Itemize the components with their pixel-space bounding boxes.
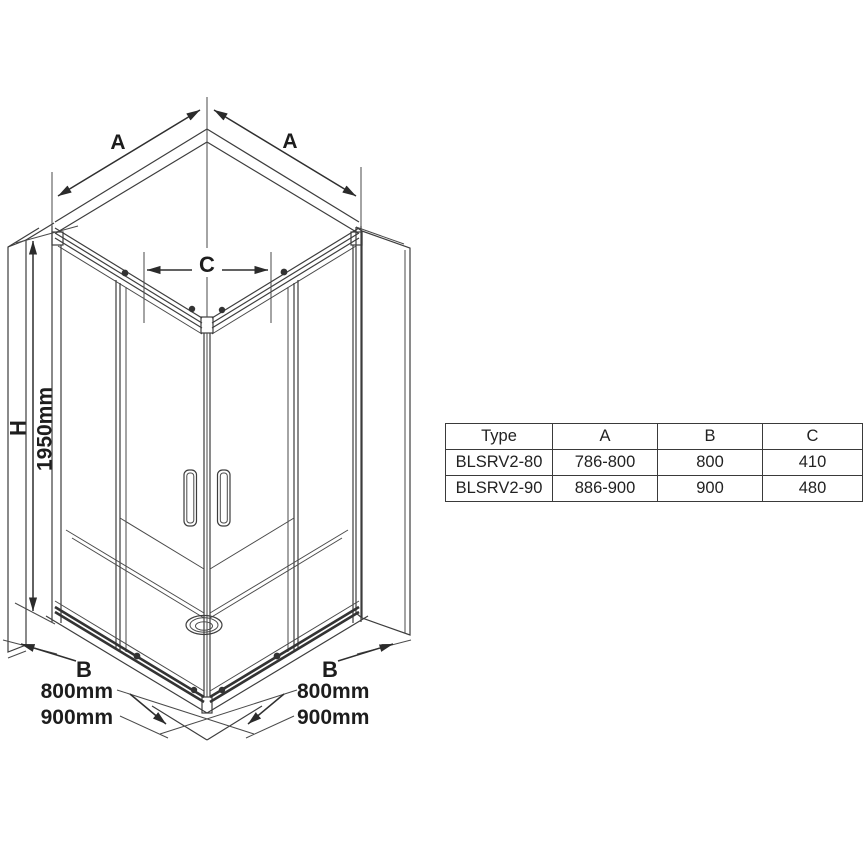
dim-b-left-label: B [76,657,92,682]
col-header-c: C [763,424,863,450]
table-row: BLSRV2-90 886-900 900 480 [446,476,863,502]
col-header-a: A [553,424,658,450]
col-header-b: B [658,424,763,450]
cell-b: 800 [658,450,763,476]
spec-table-header-row: Type A B C [446,424,863,450]
width-800-left-label: 800mm [41,680,113,703]
dim-b-right-label: B [322,657,338,682]
cell-c: 410 [763,450,863,476]
dim-a-left-label: A [110,131,125,154]
cell-a: 886-900 [553,476,658,502]
right-wall [356,227,410,635]
cell-a: 786-800 [553,450,658,476]
cell-type: BLSRV2-90 [446,476,553,502]
width-800-right-label: 800mm [297,680,369,703]
dim-c-label: C [199,252,215,277]
width-900-right-label: 900mm [297,706,369,729]
corner-post [201,317,213,713]
dim-a-right-label: A [282,130,297,153]
dim-h-value-label: 1950mm [34,387,57,471]
door-handle-right [218,470,231,526]
cell-c: 480 [763,476,863,502]
width-900-left-label: 900mm [41,706,113,729]
door-handle-left [184,470,197,526]
spec-table: Type A B C BLSRV2-80 786-800 800 410 BLS… [445,423,863,502]
dimension-a-left: A [52,110,200,226]
table-row: BLSRV2-80 786-800 800 410 [446,450,863,476]
dim-h-label: H [6,420,31,436]
col-header-type: Type [446,424,553,450]
cell-type: BLSRV2-80 [446,450,553,476]
shower-enclosure-spec-sheet: A A C H 1950mm B [0,0,868,868]
cell-b: 900 [658,476,763,502]
